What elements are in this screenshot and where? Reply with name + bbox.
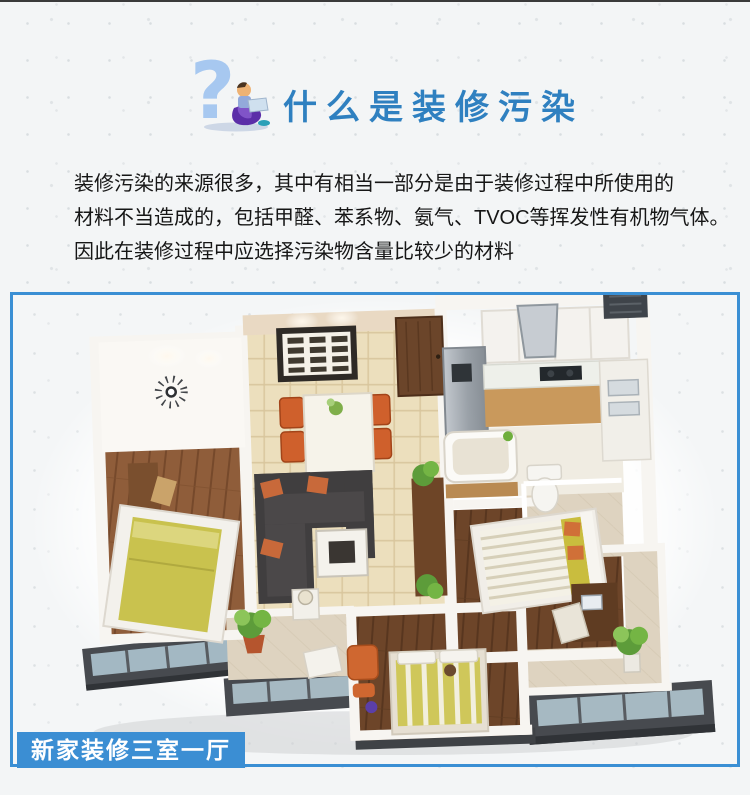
floorplan-3d-rendering [13, 295, 737, 764]
sink [608, 380, 639, 396]
intro-line: 因此在装修过程中应选择污染物含量比较少的材料 [74, 235, 734, 269]
side-table-lamp [292, 589, 319, 620]
cooktop [540, 366, 582, 381]
ottoman [353, 683, 375, 698]
picture-frame [276, 325, 358, 382]
floorplan-figure [10, 292, 740, 767]
question-mark-reader-icon: ? [188, 52, 280, 134]
question-mark-glyph: ? [190, 52, 235, 134]
caption-badge: 新家装修三室一厅 [17, 732, 245, 768]
range-hood [517, 304, 559, 357]
tub-deck [446, 482, 518, 499]
reading-person [232, 82, 270, 126]
promo-page: { "page": { "top_strip_color": "#3a3a3a"… [0, 0, 750, 795]
entry-door [396, 316, 445, 396]
page-title: 什么是装修污染 [283, 80, 584, 129]
orange-armchair [347, 645, 378, 680]
ac-unit [603, 295, 648, 319]
fridge [443, 347, 488, 442]
top-divider-strip [0, 0, 750, 2]
bed-yellow [103, 505, 239, 643]
intro-paragraph: 装修污染的来源很多，其中有相当一部分是由于装修过程中所使用的 材料不当造成的，包… [74, 167, 734, 269]
sideboard-with-plants [411, 461, 448, 600]
coffee-table [316, 529, 368, 577]
intro-line: 装修污染的来源很多，其中有相当一部分是由于装修过程中所使用的 [74, 167, 734, 201]
bed-green-striped [389, 649, 488, 734]
intro-line: 材料不当造成的，包括甲醛、苯系物、氨气、TVOC等挥发性有机物气体。 [74, 201, 734, 235]
